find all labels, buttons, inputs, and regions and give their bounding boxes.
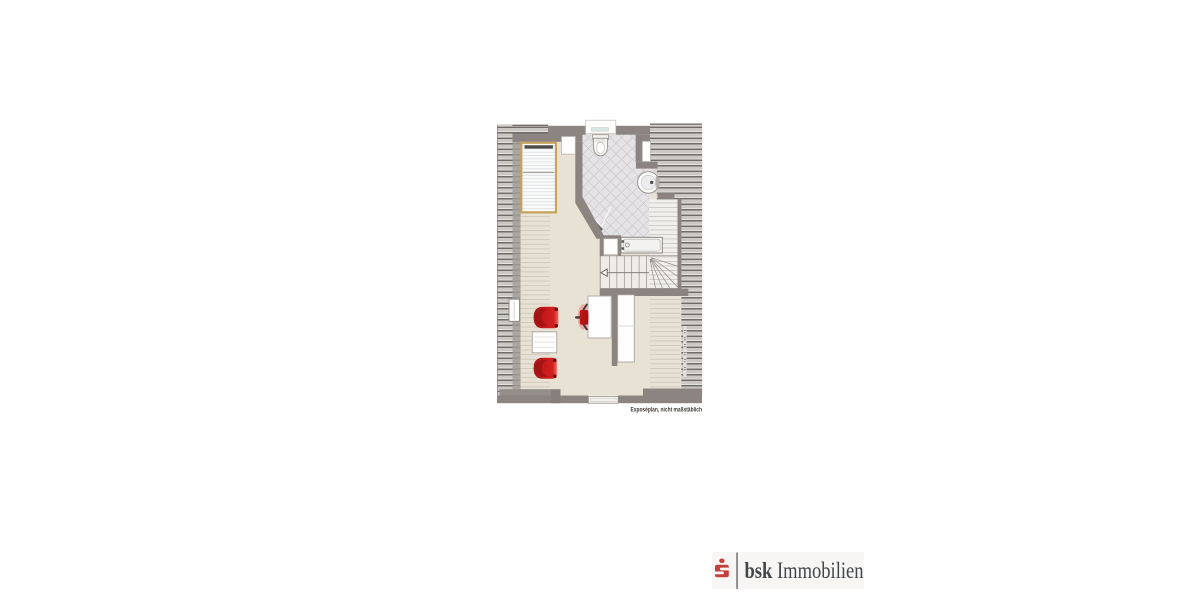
svg-text:bsk Immobilien: bsk Immobilien [745, 558, 864, 584]
svg-text:Exposéplan, nicht maßstäblich: Exposéplan, nicht maßstäblich [631, 406, 703, 413]
